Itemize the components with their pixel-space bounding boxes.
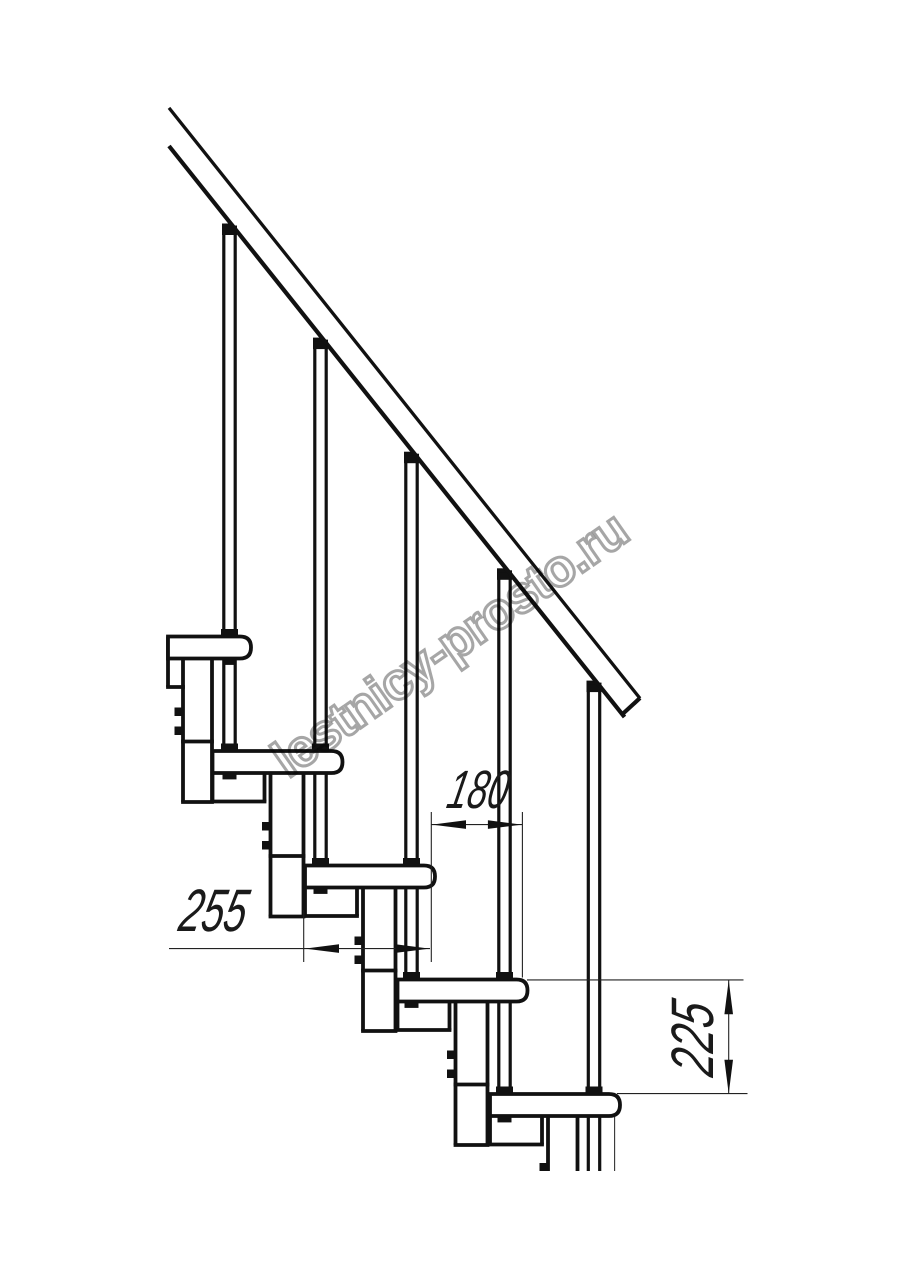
svg-text:225: 225 (660, 994, 727, 1081)
